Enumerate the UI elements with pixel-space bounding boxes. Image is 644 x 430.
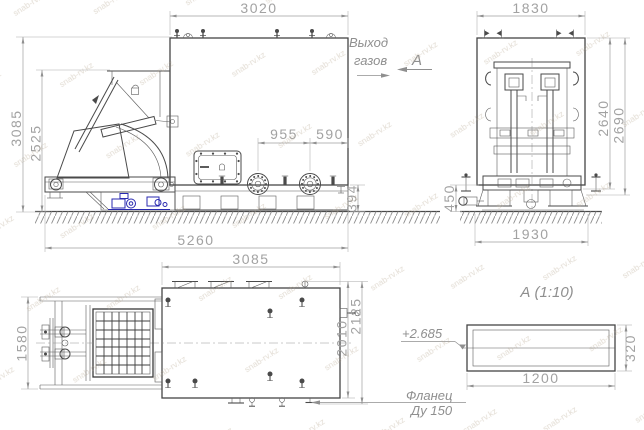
- drawing-svg: snab-rv.kz snab-rv.kz: [0, 0, 644, 430]
- watermark-overlay: [0, 0, 644, 430]
- engineering-drawing-canvas: snab-rv.kz snab-rv.kz: [0, 0, 644, 430]
